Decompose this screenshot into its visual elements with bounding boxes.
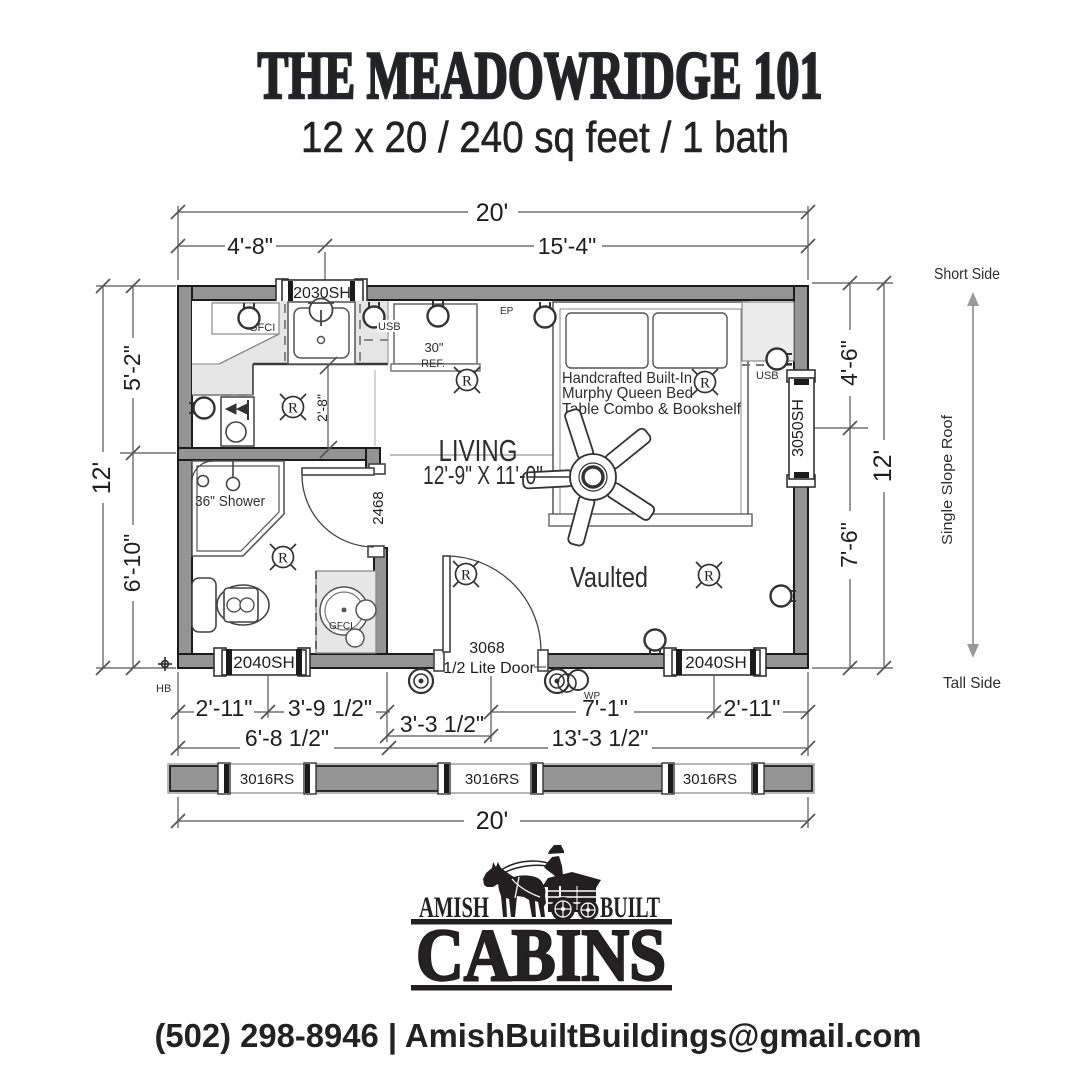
svg-text:2040SH: 2040SH	[233, 653, 294, 672]
svg-text:3'-9 1/2": 3'-9 1/2"	[288, 695, 372, 721]
svg-text:13'-3 1/2": 13'-3 1/2"	[552, 725, 649, 751]
svg-text:6'-10": 6'-10"	[119, 534, 145, 593]
svg-text:(502) 298-8946 | AmishBuiltBui: (502) 298-8946 | AmishBuiltBuildings@gma…	[155, 1017, 922, 1054]
svg-text:12'-9" X 11'-0": 12'-9" X 11'-0"	[423, 460, 543, 490]
svg-text:THE MEADOWRIDGE 101: THE MEADOWRIDGE 101	[258, 37, 823, 113]
svg-text:2'-11": 2'-11"	[196, 695, 253, 721]
svg-text:3016RS: 3016RS	[465, 771, 519, 788]
svg-text:2040SH: 2040SH	[685, 653, 746, 672]
svg-text:36" Shower: 36" Shower	[195, 494, 265, 510]
svg-text:Vaulted: Vaulted	[570, 562, 648, 594]
svg-text:REF.: REF.	[421, 358, 445, 370]
svg-text:GFCI: GFCI	[329, 621, 353, 632]
svg-text:4'-8": 4'-8"	[227, 233, 273, 259]
svg-text:USB: USB	[756, 370, 779, 382]
svg-text:20': 20'	[476, 199, 509, 227]
svg-text:12 x 20 / 240 sq feet / 1 bath: 12 x 20 / 240 sq feet / 1 bath	[301, 113, 789, 162]
svg-text:Single Slope Roof: Single Slope Roof	[939, 414, 956, 545]
svg-text:EP: EP	[500, 306, 514, 317]
svg-text:15'-4": 15'-4"	[538, 233, 597, 259]
svg-text:2468: 2468	[370, 491, 387, 524]
svg-text:5'-2": 5'-2"	[119, 345, 145, 391]
svg-text:12': 12'	[869, 450, 897, 483]
svg-text:3'-3 1/2": 3'-3 1/2"	[400, 711, 484, 737]
svg-text:HB: HB	[156, 683, 171, 695]
svg-text:3016RS: 3016RS	[683, 771, 737, 788]
svg-text:2'-11": 2'-11"	[724, 695, 781, 721]
svg-text:1/2 Lite Door: 1/2 Lite Door	[443, 660, 535, 677]
svg-text:Short Side: Short Side	[934, 266, 1000, 283]
svg-text:3068: 3068	[469, 640, 505, 657]
svg-text:6'-8 1/2": 6'-8 1/2"	[245, 725, 329, 751]
svg-text:CABINS: CABINS	[416, 915, 666, 997]
svg-text:3016RS: 3016RS	[240, 771, 294, 788]
svg-text:20': 20'	[476, 807, 509, 835]
svg-text:30": 30"	[424, 340, 443, 355]
svg-text:12': 12'	[88, 462, 116, 495]
svg-text:7'-6": 7'-6"	[836, 522, 862, 568]
svg-text:Table Combo & Bookshelf: Table Combo & Bookshelf	[562, 401, 742, 418]
svg-text:Murphy Queen Bed: Murphy Queen Bed	[562, 385, 693, 402]
svg-text:Tall Side: Tall Side	[943, 675, 1001, 692]
svg-text:7'-1": 7'-1"	[582, 695, 628, 721]
svg-text:USB: USB	[378, 321, 401, 333]
svg-text:3050SH: 3050SH	[790, 399, 807, 457]
svg-text:4'-6": 4'-6"	[836, 340, 862, 386]
svg-text:2'-8": 2'-8"	[314, 394, 330, 422]
